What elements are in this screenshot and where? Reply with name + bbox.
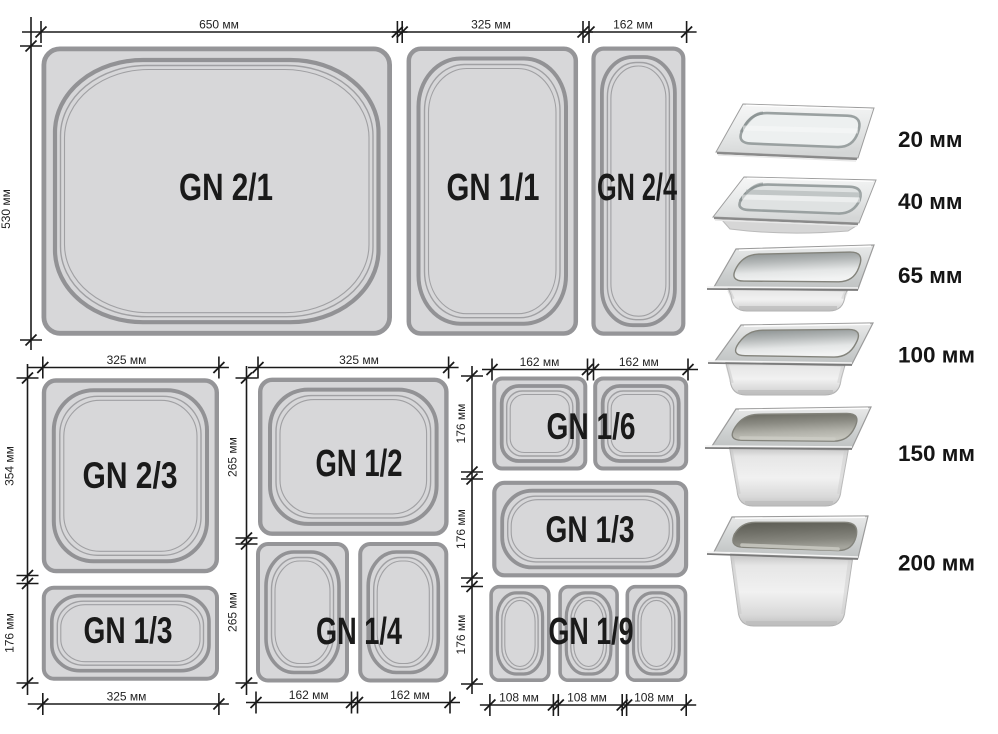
svg-text:GN 1/3: GN 1/3: [546, 509, 635, 550]
svg-text:GN 2/3: GN 2/3: [83, 455, 178, 496]
svg-text:GN 1/6: GN 1/6: [547, 406, 636, 447]
svg-text:162 мм: 162 мм: [390, 688, 430, 702]
svg-text:265 мм: 265 мм: [226, 592, 240, 632]
svg-text:20 мм: 20 мм: [898, 127, 963, 152]
svg-text:GN 1/2: GN 1/2: [316, 443, 403, 485]
svg-text:162 мм: 162 мм: [619, 355, 659, 369]
svg-text:200 мм: 200 мм: [898, 551, 975, 576]
svg-text:650 мм: 650 мм: [199, 18, 239, 32]
svg-text:162 мм: 162 мм: [289, 688, 329, 702]
svg-text:325 мм: 325 мм: [107, 690, 147, 704]
svg-text:325 мм: 325 мм: [339, 353, 379, 367]
svg-text:GN 1/9: GN 1/9: [549, 611, 634, 653]
svg-text:108 мм: 108 мм: [567, 691, 607, 705]
svg-text:162 мм: 162 мм: [613, 18, 653, 32]
svg-text:325 мм: 325 мм: [107, 353, 147, 367]
svg-text:354 мм: 354 мм: [3, 446, 17, 486]
svg-text:265 мм: 265 мм: [226, 437, 240, 477]
svg-text:65 мм: 65 мм: [898, 263, 963, 288]
svg-text:GN 1/4: GN 1/4: [316, 611, 402, 653]
svg-text:108 мм: 108 мм: [499, 691, 539, 705]
svg-text:176 мм: 176 мм: [454, 509, 468, 549]
svg-text:GN 2/4: GN 2/4: [597, 167, 677, 209]
svg-text:GN 1/1: GN 1/1: [447, 167, 540, 209]
svg-text:176 мм: 176 мм: [454, 404, 468, 444]
svg-text:GN 2/1: GN 2/1: [179, 167, 273, 209]
svg-text:530 мм: 530 мм: [0, 189, 13, 229]
svg-text:176 мм: 176 мм: [454, 615, 468, 655]
svg-text:325 мм: 325 мм: [471, 18, 511, 32]
svg-text:GN 1/3: GN 1/3: [84, 610, 173, 651]
svg-text:176 мм: 176 мм: [3, 613, 17, 653]
svg-text:100 мм: 100 мм: [898, 343, 975, 368]
svg-text:162 мм: 162 мм: [520, 355, 560, 369]
svg-text:40 мм: 40 мм: [898, 189, 963, 214]
svg-text:150 мм: 150 мм: [898, 441, 975, 466]
svg-text:108 мм: 108 мм: [634, 691, 674, 705]
